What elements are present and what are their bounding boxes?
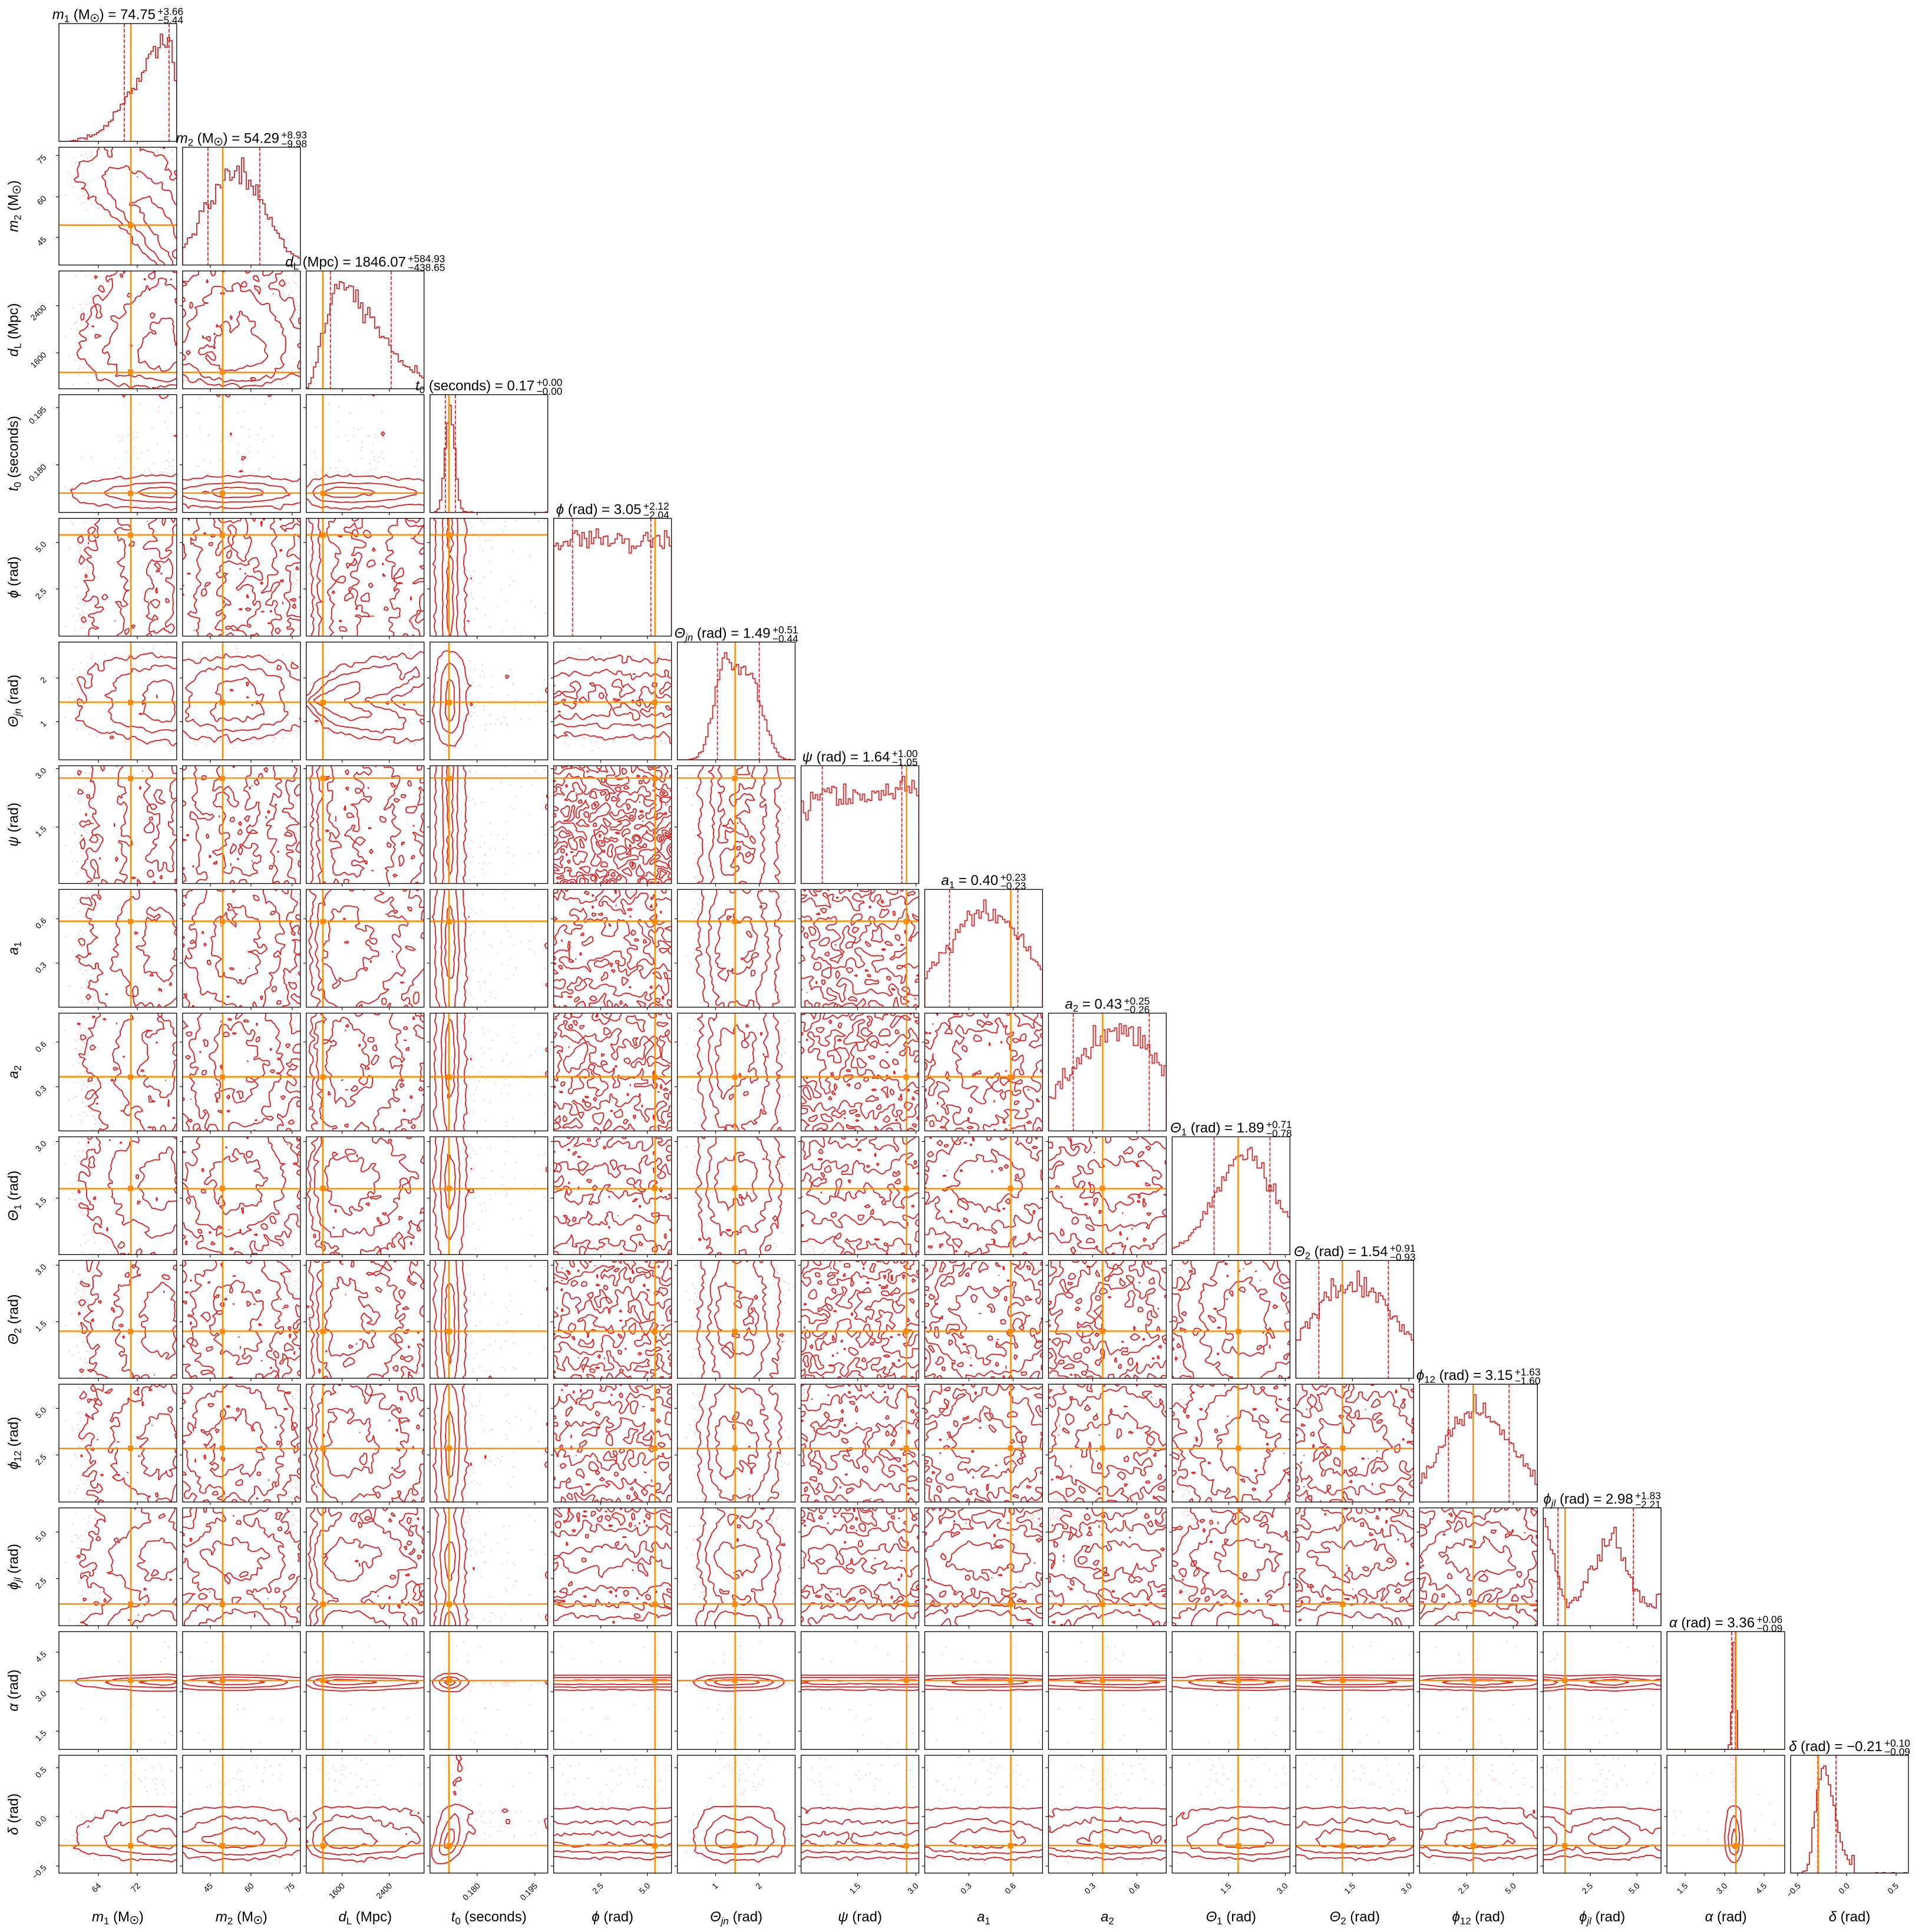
svg-text:(rad): (rad)	[6, 1670, 22, 1703]
svg-text:): )	[100, 7, 104, 23]
svg-text:ϕ: ϕ	[6, 590, 22, 598]
svg-text:Θ: Θ	[1330, 1909, 1341, 1925]
svg-text:−0.09: −0.09	[1757, 1622, 1783, 1634]
svg-text:jn: jn	[12, 708, 24, 717]
svg-text:a: a	[977, 1909, 985, 1925]
svg-text:12: 12	[12, 1451, 24, 1462]
svg-text:δ: δ	[6, 1827, 22, 1835]
svg-text:−0.93: −0.93	[1390, 1251, 1416, 1263]
svg-text:−0.78: −0.78	[1266, 1128, 1292, 1140]
svg-text:= 3.05: = 3.05	[597, 501, 641, 517]
svg-text:= 1.89: = 1.89	[1220, 1120, 1264, 1136]
svg-text:= 1.64: = 1.64	[846, 749, 890, 765]
svg-text:0: 0	[420, 385, 425, 396]
svg-text:(rad): (rad)	[1435, 1368, 1469, 1383]
svg-text:(: (	[6, 206, 22, 215]
svg-text:(rad): (rad)	[1796, 1739, 1830, 1755]
svg-text:m: m	[216, 1909, 227, 1925]
svg-text:−1.05: −1.05	[892, 757, 918, 768]
svg-text:Θ: Θ	[710, 1909, 721, 1925]
svg-text:Θ: Θ	[1170, 1120, 1181, 1136]
svg-text:−2.04: −2.04	[643, 509, 669, 521]
svg-text:(rad): (rad)	[813, 749, 846, 765]
svg-text:ψ: ψ	[838, 1909, 848, 1925]
svg-text:1: 1	[12, 942, 24, 947]
svg-text:δ: δ	[1789, 1739, 1797, 1755]
svg-text:1: 1	[104, 1916, 109, 1927]
svg-text:2: 2	[1305, 1250, 1310, 1261]
svg-text:(rad): (rad)	[1223, 1909, 1256, 1925]
svg-text:−1.60: −1.60	[1515, 1375, 1541, 1386]
svg-text:(rad): (rad)	[1713, 1909, 1746, 1925]
svg-text:a: a	[942, 873, 949, 889]
svg-text:(rad): (rad)	[1837, 1909, 1870, 1925]
svg-text:2: 2	[12, 1328, 24, 1333]
svg-text:−9.98: −9.98	[281, 138, 307, 150]
svg-text:(rad): (rad)	[564, 501, 597, 517]
svg-text:m: m	[52, 7, 64, 23]
svg-text:(rad): (rad)	[1555, 1491, 1589, 1507]
svg-text:= 1.49: = 1.49	[727, 625, 771, 641]
svg-text:2: 2	[12, 214, 24, 220]
svg-text:Θ: Θ	[6, 716, 22, 728]
svg-text:1: 1	[949, 879, 955, 890]
svg-text:12: 12	[1460, 1916, 1471, 1927]
svg-text:1: 1	[12, 1204, 24, 1210]
svg-text:1: 1	[1217, 1916, 1222, 1927]
svg-text:(Mpc): (Mpc)	[299, 255, 339, 270]
svg-text:M: M	[78, 7, 90, 23]
svg-text:M: M	[202, 131, 214, 147]
svg-text:= 0.40: = 0.40	[955, 873, 998, 889]
svg-text:1: 1	[64, 14, 70, 25]
svg-text:M: M	[6, 194, 22, 206]
svg-text:= 3.15: = 3.15	[1469, 1368, 1512, 1383]
svg-text:Θ: Θ	[6, 1210, 22, 1221]
svg-text:(Mpc): (Mpc)	[6, 303, 22, 344]
svg-text:2: 2	[12, 1065, 24, 1071]
svg-text:= −0.21: = −0.21	[1831, 1739, 1883, 1755]
svg-text:= 74.75: = 74.75	[104, 7, 156, 23]
svg-text:ϕ: ϕ	[6, 1462, 22, 1469]
svg-text:Θ: Θ	[6, 1333, 22, 1345]
svg-text:(: (	[193, 131, 202, 147]
svg-text:(rad): (rad)	[6, 802, 22, 836]
svg-text:= 1.54: = 1.54	[1344, 1244, 1388, 1260]
svg-text:m: m	[176, 131, 188, 147]
svg-text:−0.09: −0.09	[1884, 1746, 1910, 1758]
svg-text:(rad): (rad)	[6, 1544, 22, 1577]
svg-text:(rad): (rad)	[6, 1417, 22, 1451]
svg-text:Θ: Θ	[1206, 1909, 1217, 1925]
svg-text:(rad): (rad)	[1187, 1120, 1220, 1136]
svg-text:M: M	[242, 1909, 253, 1925]
svg-text:): )	[139, 1909, 144, 1925]
svg-text:2: 2	[1108, 1916, 1114, 1927]
svg-text:a: a	[1101, 1909, 1108, 1925]
svg-text:(rad): (rad)	[1310, 1244, 1344, 1260]
svg-text:= 0.17: = 0.17	[491, 378, 534, 394]
svg-text:L: L	[346, 1916, 352, 1927]
svg-text:M: M	[118, 1909, 130, 1925]
svg-text:(: (	[70, 7, 78, 23]
svg-text:a: a	[6, 1071, 22, 1078]
svg-text:= 54.29: = 54.29	[228, 131, 279, 147]
svg-text:): )	[223, 131, 228, 147]
svg-text:L: L	[293, 261, 299, 272]
svg-text:(rad): (rad)	[1346, 1909, 1380, 1925]
svg-text:1: 1	[985, 1916, 990, 1927]
svg-text:(rad): (rad)	[6, 1171, 22, 1204]
svg-text:ϕ: ϕ	[592, 1909, 599, 1925]
svg-text:(seconds): (seconds)	[461, 1909, 527, 1925]
svg-text:0: 0	[455, 1916, 460, 1927]
svg-text:2: 2	[1073, 1003, 1078, 1014]
svg-text:−438.65: −438.65	[408, 262, 445, 273]
svg-text:L: L	[12, 343, 24, 348]
svg-text:= 0.43: = 0.43	[1078, 996, 1122, 1012]
svg-text:2: 2	[188, 137, 193, 148]
svg-text:= 3.36: = 3.36	[1711, 1615, 1755, 1631]
svg-text:d: d	[6, 348, 22, 356]
svg-text:m: m	[92, 1909, 104, 1925]
svg-text:ϕ: ϕ	[6, 1582, 22, 1590]
svg-text:= 1846.07: = 1846.07	[339, 255, 406, 270]
svg-text:jn: jn	[720, 1916, 729, 1927]
svg-text:ϕ: ϕ	[1416, 1368, 1424, 1383]
svg-text:ϕ: ϕ	[1452, 1909, 1460, 1925]
svg-text:(rad): (rad)	[1677, 1615, 1711, 1631]
svg-text:a: a	[6, 947, 22, 955]
svg-text:2: 2	[1340, 1916, 1346, 1927]
svg-text:(rad): (rad)	[729, 1909, 762, 1925]
svg-text:Θ: Θ	[1294, 1244, 1305, 1260]
svg-text:−0.26: −0.26	[1124, 1004, 1150, 1016]
svg-text:0: 0	[12, 482, 24, 487]
svg-text:−0.00: −0.00	[537, 385, 563, 397]
svg-text:(rad): (rad)	[600, 1909, 633, 1925]
svg-text:ϕ: ϕ	[1544, 1491, 1551, 1507]
svg-text:12: 12	[1424, 1374, 1435, 1385]
svg-text:(rad): (rad)	[693, 625, 726, 641]
svg-text:m: m	[6, 220, 22, 232]
svg-text:= 2.98: = 2.98	[1590, 1491, 1633, 1507]
svg-text:Θ: Θ	[675, 625, 686, 641]
svg-text:(seconds): (seconds)	[425, 378, 491, 394]
svg-text:δ: δ	[1829, 1909, 1837, 1925]
svg-text:ψ: ψ	[6, 837, 22, 847]
svg-text:): )	[263, 1909, 267, 1925]
svg-text:ψ: ψ	[802, 749, 813, 765]
svg-text:d: d	[339, 1909, 347, 1925]
svg-text:d: d	[285, 255, 293, 270]
svg-text:(rad): (rad)	[6, 556, 22, 590]
svg-text:(: (	[233, 1909, 242, 1925]
svg-text:−2.21: −2.21	[1635, 1498, 1661, 1510]
svg-text:−0.23: −0.23	[1000, 880, 1026, 892]
svg-text:jn: jn	[684, 632, 693, 643]
svg-text:−5.44: −5.44	[157, 14, 183, 26]
svg-text:): )	[6, 180, 22, 185]
svg-text:(rad): (rad)	[1591, 1909, 1625, 1925]
svg-text:a: a	[1065, 996, 1073, 1012]
svg-text:2: 2	[227, 1916, 233, 1927]
svg-text:(: (	[109, 1909, 118, 1925]
svg-text:(rad): (rad)	[6, 675, 22, 708]
svg-text:(rad): (rad)	[6, 1794, 22, 1827]
svg-text:(Mpc): (Mpc)	[352, 1909, 392, 1925]
svg-text:(seconds): (seconds)	[6, 416, 22, 482]
svg-text:ϕ: ϕ	[1579, 1909, 1587, 1925]
svg-text:1: 1	[1181, 1127, 1187, 1138]
svg-text:ϕ: ϕ	[556, 501, 564, 517]
svg-text:(rad): (rad)	[6, 1294, 22, 1328]
svg-text:(rad): (rad)	[848, 1909, 882, 1925]
svg-text:(rad): (rad)	[1471, 1909, 1505, 1925]
svg-text:−0.44: −0.44	[772, 633, 798, 645]
